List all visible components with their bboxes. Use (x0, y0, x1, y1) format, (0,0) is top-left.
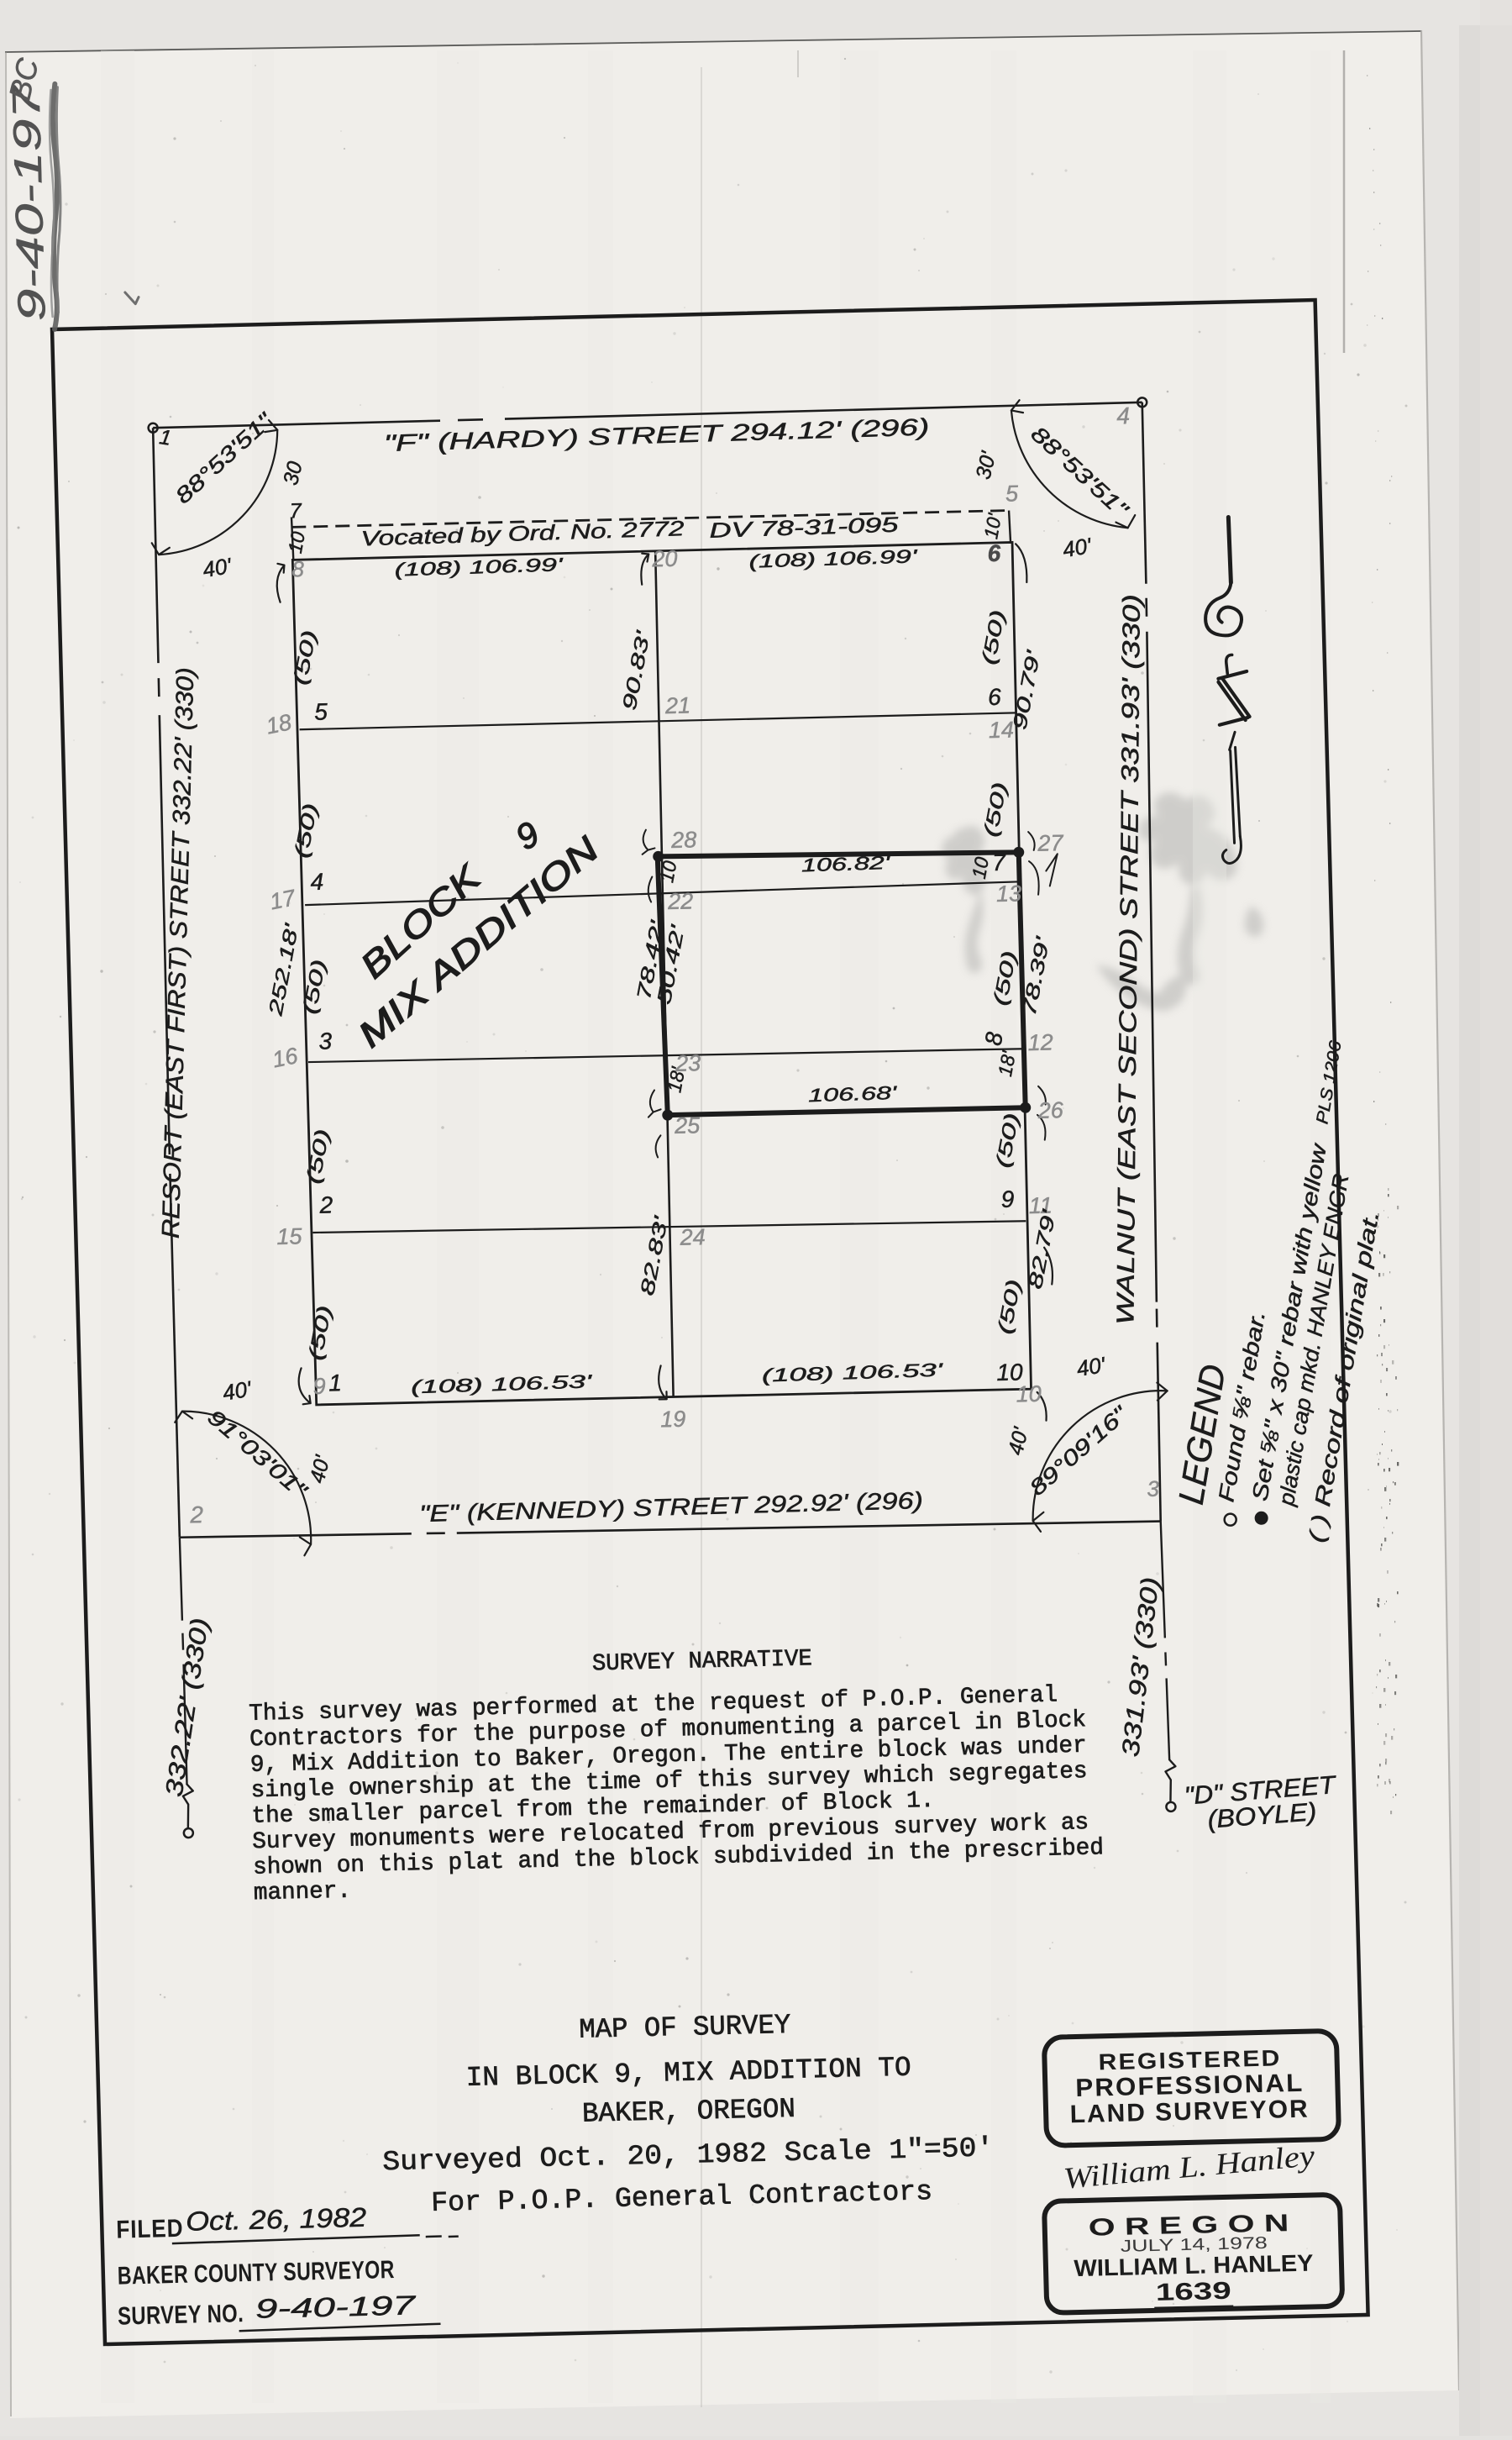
svg-text:13: 13 (996, 881, 1022, 907)
svg-text:5: 5 (314, 698, 328, 724)
svg-text:10: 10 (655, 859, 680, 884)
svg-text:40': 40' (221, 1375, 254, 1405)
svg-text:SURVEY NARRATIVE: SURVEY NARRATIVE (592, 1646, 813, 1677)
svg-text:24: 24 (679, 1224, 706, 1250)
svg-text:BAKER, OREGON: BAKER, OREGON (582, 2094, 796, 2130)
svg-text:Oct. 26, 1982: Oct. 26, 1982 (186, 2202, 367, 2237)
svg-text:20: 20 (651, 546, 678, 572)
svg-text:6: 6 (987, 540, 1001, 566)
svg-text:1639: 1639 (1155, 2278, 1231, 2306)
svg-text:SURVEY NO.: SURVEY NO. (118, 2300, 244, 2330)
svg-text:9-40-197: 9-40-197 (255, 2290, 417, 2323)
svg-text:40': 40' (1061, 533, 1094, 562)
svg-text:21: 21 (664, 692, 691, 718)
svg-text:10: 10 (284, 529, 309, 555)
svg-text:9-40-197: 9-40-197 (3, 84, 53, 322)
svg-text:12: 12 (1027, 1029, 1053, 1055)
svg-text:19: 19 (660, 1407, 686, 1433)
svg-text:FILED: FILED (116, 2215, 184, 2244)
svg-text:27: 27 (1037, 830, 1064, 856)
svg-text:8: 8 (291, 556, 305, 581)
svg-text:9: 9 (1000, 1186, 1014, 1212)
svg-text:25: 25 (674, 1112, 701, 1138)
svg-text:40': 40' (201, 553, 234, 582)
svg-text:MAP OF SURVEY: MAP OF SURVEY (579, 2010, 791, 2046)
svg-text:4: 4 (310, 869, 323, 895)
svg-text:9: 9 (312, 1374, 326, 1399)
svg-text:6: 6 (988, 684, 1002, 710)
svg-text:5: 5 (1005, 481, 1020, 506)
svg-text:WILLIAM L. HANLEY: WILLIAM L. HANLEY (1074, 2249, 1314, 2281)
svg-text:3: 3 (318, 1028, 333, 1054)
svg-text:16: 16 (270, 1043, 300, 1072)
svg-text:18: 18 (264, 709, 293, 739)
svg-text:7: 7 (992, 849, 1007, 876)
svg-text:10: 10 (1016, 1381, 1042, 1407)
svg-text:106.68': 106.68' (808, 1082, 898, 1106)
svg-text:1: 1 (328, 1370, 342, 1396)
svg-text:3: 3 (1147, 1476, 1160, 1501)
svg-text:15: 15 (276, 1223, 303, 1249)
svg-text:40': 40' (1074, 1352, 1107, 1381)
svg-text:22: 22 (667, 888, 694, 914)
svg-text:LAND SURVEYOR: LAND SURVEYOR (1069, 2096, 1310, 2129)
svg-text:106.82': 106.82' (801, 852, 891, 876)
svg-text:23: 23 (675, 1050, 701, 1076)
svg-text:2: 2 (189, 1501, 204, 1528)
svg-text:2: 2 (318, 1191, 333, 1217)
svg-text:7: 7 (289, 499, 302, 523)
svg-text:4: 4 (1116, 402, 1130, 429)
svg-text:manner.: manner. (254, 1879, 352, 1907)
svg-text:28: 28 (670, 827, 697, 853)
svg-text:26: 26 (1037, 1097, 1063, 1123)
